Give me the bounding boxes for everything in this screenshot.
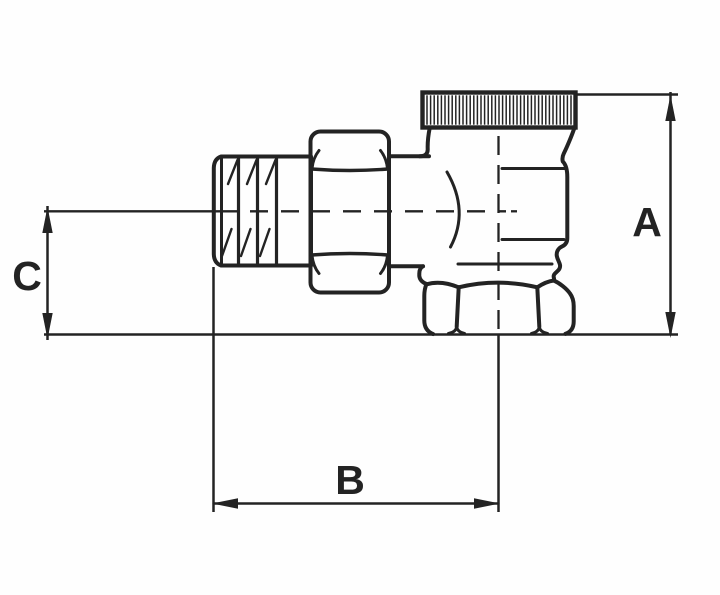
valve-cone-arc (447, 172, 459, 247)
thread-hatch-top (228, 160, 276, 184)
outlet-nut-divider-right (537, 287, 539, 326)
centerlines (44, 136, 517, 335)
body-right-profile (554, 128, 575, 281)
thread-hatch-mark (260, 229, 270, 256)
dim-b-label: B (335, 457, 365, 503)
outlet-nut-left-edge (424, 284, 433, 334)
outlet-nut-right-shoulder (554, 281, 574, 334)
thread-hatch-mark (241, 229, 251, 256)
dim-b-arrow-left (212, 498, 238, 508)
union-nut-chamfer-bl (312, 256, 319, 274)
body-neck-left (420, 128, 430, 157)
dim-c-label: C (12, 253, 42, 299)
dimension-a: A (577, 92, 678, 338)
thread-hatch-mark (266, 160, 276, 184)
union-nut-chamfer-tr (381, 151, 388, 169)
outlet-nut-chamfer-r2 (532, 327, 540, 334)
dim-b-arrow-right (474, 498, 500, 508)
thread-hatch-bottom (222, 229, 270, 256)
valve-assembly (214, 93, 576, 335)
outlet-nut-left-face-arc (427, 283, 459, 288)
valve-technical-drawing: A C B (0, 0, 720, 595)
body-bottom-left-corner (419, 266, 426, 284)
union-nut-chamfer-tl (312, 151, 319, 169)
valve-body (419, 128, 574, 285)
drawing-canvas: A C B (0, 0, 720, 595)
dimension-c: C (12, 206, 53, 340)
cap-knurl-hatch (427, 95, 571, 124)
union-nut-facet-bottom (312, 254, 389, 256)
knurled-bonnet-cap (423, 93, 576, 128)
outlet-nut-divider-left (457, 287, 459, 326)
thread-hatch-mark (247, 160, 257, 184)
outlet-nut-right-face-arc (537, 281, 554, 288)
dim-a-arrow-up (665, 95, 675, 121)
thread-hatch-mark (222, 229, 232, 256)
union-nut-chamfer-br (381, 256, 388, 274)
outlet-nut-chamfer-l2 (457, 327, 465, 334)
dim-a-label: A (632, 199, 662, 245)
thread-hatch-mark (228, 160, 238, 184)
union-nut-facet-top (312, 169, 389, 171)
